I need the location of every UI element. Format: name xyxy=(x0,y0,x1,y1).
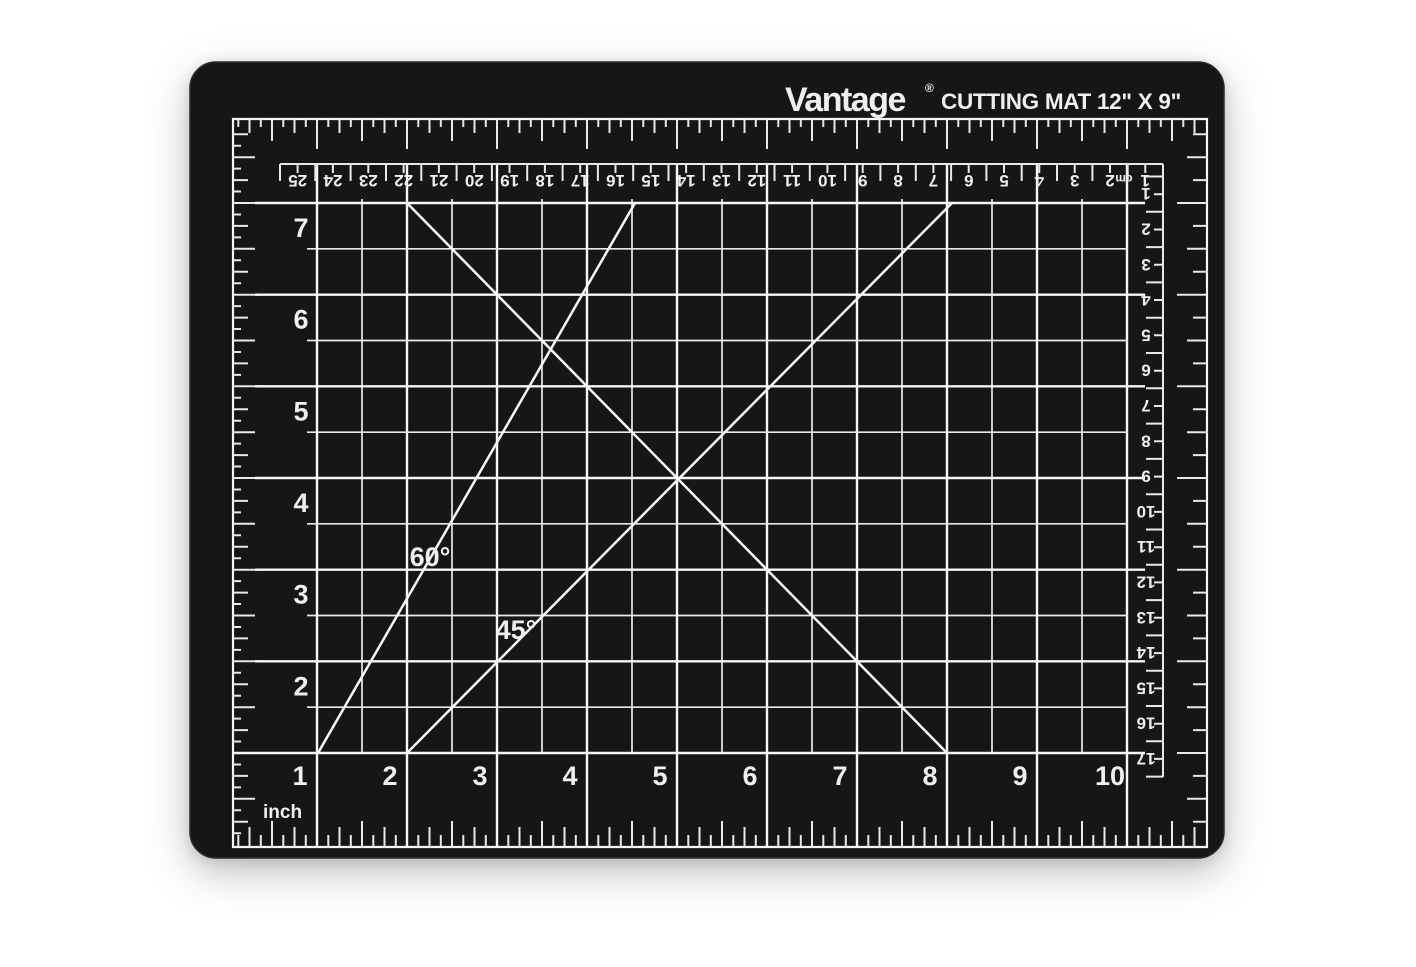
top-cm-ruler-number: 6 xyxy=(964,171,973,190)
right-cm-ruler-number: 4 xyxy=(1141,290,1151,309)
top-cm-ruler-number: 5 xyxy=(999,171,1008,190)
top-cm-ruler-number: 2 xyxy=(1105,171,1114,190)
left-inch-number: 6 xyxy=(293,305,308,335)
cutting-mat-surface xyxy=(190,62,1224,858)
top-cm-ruler-number: 4 xyxy=(1034,171,1044,190)
top-cm-ruler-number: 13 xyxy=(712,171,731,190)
top-cm-ruler-number: 20 xyxy=(465,171,484,190)
bottom-inch-number: 8 xyxy=(922,761,937,791)
angle-label-45-degrees: 45° xyxy=(496,615,537,645)
bottom-inch-number: 1 xyxy=(292,761,307,791)
bottom-inch-number: 9 xyxy=(1012,761,1027,791)
top-cm-ruler-number: 16 xyxy=(606,171,625,190)
right-cm-ruler-number: 2 xyxy=(1141,220,1150,239)
top-cm-ruler-number: 23 xyxy=(359,171,378,190)
right-cm-ruler-number: 14 xyxy=(1136,643,1155,662)
top-cm-ruler-number: 9 xyxy=(858,171,867,190)
top-cm-ruler-number: 22 xyxy=(394,171,413,190)
top-cm-ruler-number: 3 xyxy=(1070,171,1079,190)
bottom-inch-number: 2 xyxy=(382,761,397,791)
right-cm-ruler-number: 9 xyxy=(1141,467,1150,486)
top-cm-ruler-number: 7 xyxy=(929,171,938,190)
top-cm-ruler-number: 8 xyxy=(893,171,902,190)
right-cm-ruler-number: 10 xyxy=(1137,502,1156,521)
top-cm-ruler-number: 21 xyxy=(429,171,448,190)
right-cm-ruler-number: 16 xyxy=(1137,714,1156,733)
right-cm-ruler-number: 3 xyxy=(1141,255,1150,274)
top-cm-ruler-number: 15 xyxy=(641,171,660,190)
top-cm-ruler-number: 18 xyxy=(535,171,554,190)
angle-label-60-degrees: 60° xyxy=(410,542,451,572)
cm-unit-label: cm xyxy=(1115,172,1132,186)
bottom-inch-number: 6 xyxy=(742,761,757,791)
left-inch-number: 4 xyxy=(293,488,308,518)
left-inch-number: 3 xyxy=(293,580,308,610)
bottom-inch-number: 4 xyxy=(562,761,577,791)
top-cm-ruler-number: 11 xyxy=(783,171,801,190)
right-cm-ruler-number: 12 xyxy=(1137,573,1156,592)
right-cm-ruler-number: 13 xyxy=(1137,608,1156,627)
left-inch-number: 5 xyxy=(293,396,308,426)
cutting-mat-image: 2524232221201918171615141312111098765432… xyxy=(0,0,1416,967)
top-cm-ruler-number: 19 xyxy=(500,171,519,190)
right-cm-ruler-number: 1 xyxy=(1141,184,1150,203)
brand-logo: Vantage xyxy=(785,81,905,119)
left-inch-number: 2 xyxy=(293,671,308,701)
product-photo: 2524232221201918171615141312111098765432… xyxy=(0,0,1416,967)
bottom-inch-number: 3 xyxy=(472,761,487,791)
right-cm-ruler-number: 5 xyxy=(1141,325,1150,344)
right-cm-ruler-number: 7 xyxy=(1141,396,1150,415)
inch-unit-label: inch xyxy=(263,802,302,823)
bottom-inch-number: 10 xyxy=(1095,761,1125,791)
right-cm-ruler-number: 17 xyxy=(1137,749,1156,768)
product-title: CUTTING MAT 12" X 9" xyxy=(941,89,1181,114)
bottom-inch-number: 5 xyxy=(652,761,667,791)
top-cm-ruler-number: 12 xyxy=(747,171,766,190)
top-cm-ruler-number: 14 xyxy=(676,171,695,190)
right-cm-ruler-number: 8 xyxy=(1141,431,1150,450)
top-cm-ruler-number: 25 xyxy=(288,171,307,190)
right-cm-ruler-number: 15 xyxy=(1137,678,1156,697)
bottom-inch-number: 7 xyxy=(832,761,847,791)
top-cm-ruler-number: 10 xyxy=(818,171,837,190)
top-cm-ruler-number: 17 xyxy=(571,171,590,190)
right-cm-ruler-number: 11 xyxy=(1137,537,1155,556)
registered-trademark-symbol: ® xyxy=(925,81,934,95)
right-cm-ruler-number: 6 xyxy=(1141,361,1150,380)
top-cm-ruler-number: 24 xyxy=(323,171,342,190)
left-inch-number: 7 xyxy=(293,213,308,243)
